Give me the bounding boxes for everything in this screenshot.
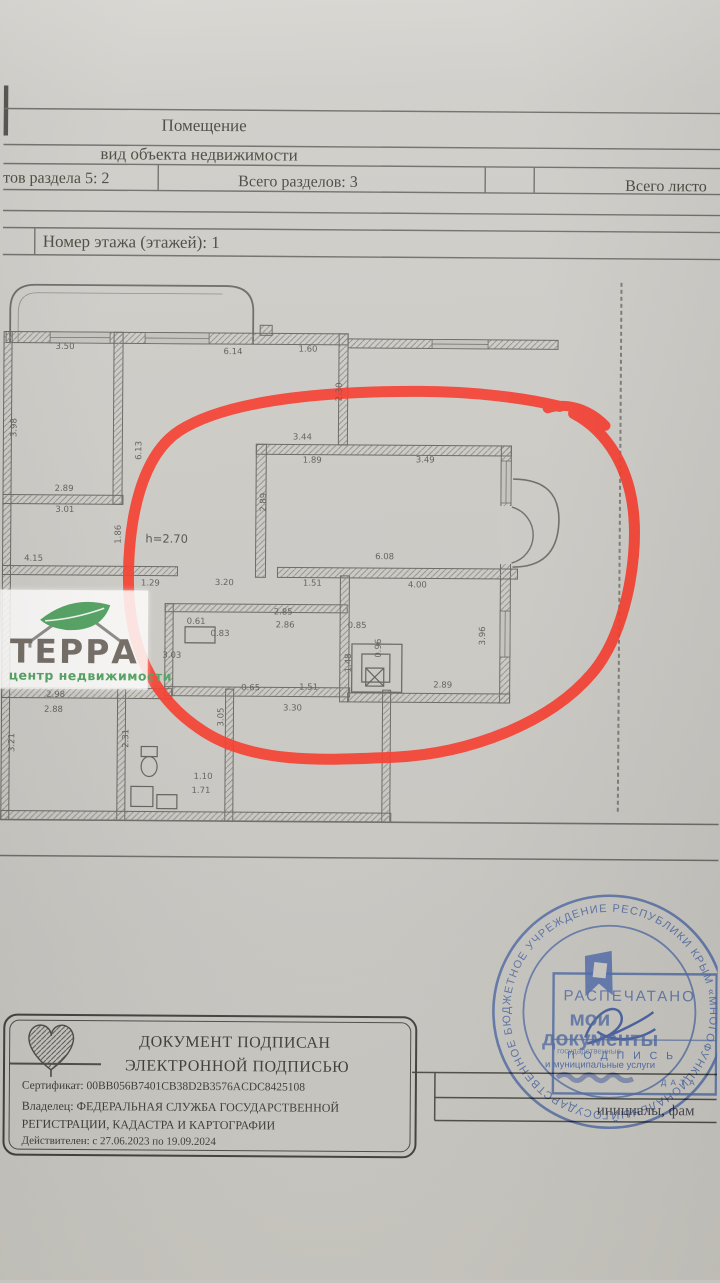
terra-logo-name: ТЕРРА bbox=[10, 632, 139, 672]
page-fold-line bbox=[618, 283, 622, 812]
cell-total-sections: Всего разделов: 3 bbox=[238, 173, 358, 192]
terra-watermark: ТЕРРА центр недвижимости bbox=[0, 589, 148, 689]
photo-edge-artifact bbox=[4, 86, 9, 136]
signature-validity: Действителен: с 27.06.2023 по 19.09.2024 bbox=[21, 1135, 216, 1148]
photo-paper-background: Помещение вид объекта недвижимости тов р… bbox=[0, 0, 720, 1280]
balcony-door-outline bbox=[513, 479, 560, 567]
door-swing-arc bbox=[512, 507, 534, 563]
signature-title-line2: ЭЛЕКТРОННОЙ ПОДПИСЬЮ bbox=[125, 1057, 349, 1077]
floor-plan-drawing bbox=[0, 278, 720, 860]
initials-surname-caption: инициалы, фам bbox=[597, 1103, 695, 1121]
signature-title-line1: ДОКУМЕНТ ПОДПИСАН bbox=[139, 1033, 330, 1052]
floor-number-row: Номер этажа (этажей): 1 bbox=[43, 232, 220, 253]
cell-section-sheets: тов раздела 5: 2 bbox=[3, 169, 109, 188]
digital-signature-block: ДОКУМЕНТ ПОДПИСАН ЭЛЕКТРОННОЙ ПОДПИСЬЮ С… bbox=[2, 1014, 417, 1159]
cell-total-sheets: Всего листо bbox=[625, 178, 707, 197]
signature-owner-line2: РЕГИСТРАЦИИ, КАДАСТРА И КАРТОГРАФИИ bbox=[22, 1117, 276, 1134]
doc-type-subtitle: вид объекта недвижимости bbox=[100, 144, 297, 165]
document-page: Помещение вид объекта недвижимости тов р… bbox=[0, 0, 720, 1282]
signature-certificate: Сертификат: 00BB056B7401CB38D2B3576ACDC8… bbox=[22, 1080, 305, 1094]
doc-type-title: Помещение bbox=[162, 116, 247, 137]
signature-owner-line1: Владелец: ФЕДЕРАЛЬНАЯ СЛУЖБА ГОСУДАРСТВЕ… bbox=[22, 1099, 339, 1116]
signature-emblem-icon bbox=[21, 1020, 85, 1078]
door-opening bbox=[500, 506, 512, 564]
terra-logo-subtitle: центр недвижимости bbox=[9, 668, 172, 684]
